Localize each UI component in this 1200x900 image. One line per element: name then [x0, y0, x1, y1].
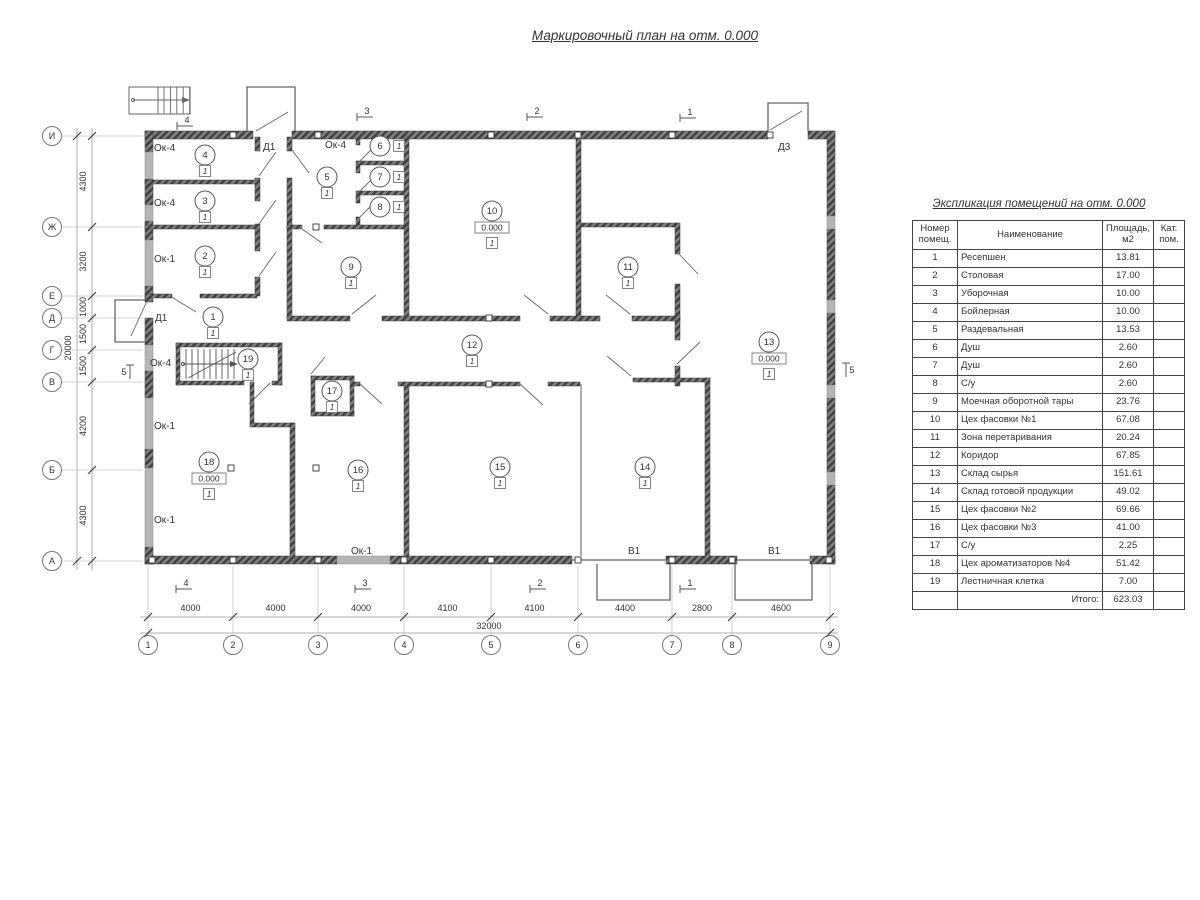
table-cell: Душ [958, 340, 1103, 358]
table-cell: 2.60 [1103, 358, 1154, 376]
table-row: 4Бойлерная10.00 [913, 304, 1185, 322]
table-cell [1154, 304, 1185, 322]
table-cell: 7.00 [1103, 574, 1154, 592]
grid-axis-label: Ж [48, 222, 57, 232]
wall [633, 378, 710, 382]
room-number: 16 [353, 465, 364, 476]
table-cell: 11 [913, 430, 958, 448]
room-schedule-table: Номер помещ. Наименование Площадь, м2 Ка… [912, 220, 1185, 610]
column-mark [230, 557, 236, 563]
room-number: 14 [640, 462, 651, 473]
table-total-row: Итого:623.03 [913, 592, 1185, 610]
exterior-stair-landing [129, 87, 158, 114]
grid-axis-label: Б [49, 465, 55, 475]
wall [287, 227, 292, 318]
window-label: Ок-4 [325, 140, 346, 151]
window-segment [145, 240, 153, 286]
grid-axis-label: И [49, 131, 55, 141]
column-mark [488, 557, 494, 563]
room-number: 15 [495, 462, 506, 473]
wall [176, 343, 282, 347]
table-cell: Уборочная [958, 286, 1103, 304]
table-cell [1154, 502, 1185, 520]
door-leaf [606, 295, 630, 314]
dim-label: 4300 [78, 171, 88, 191]
column-mark [767, 132, 773, 138]
floor-type-mark: 1 [643, 479, 647, 488]
floor-type-mark: 1 [356, 482, 360, 491]
grid-axis-label: 7 [669, 640, 674, 650]
floor-type-mark: 1 [325, 189, 329, 198]
table-cell: 9 [913, 394, 958, 412]
wall [311, 376, 354, 380]
table-cell [913, 592, 958, 610]
table-cell: 10.00 [1103, 304, 1154, 322]
floor-type-mark: 1 [470, 357, 474, 366]
window-label: Ок-4 [150, 358, 171, 369]
table-cell: 13.53 [1103, 322, 1154, 340]
grid-axis-label: 5 [488, 640, 493, 650]
wall [311, 376, 315, 416]
table-row: 5Раздевальная13.53 [913, 322, 1185, 340]
table-cell: 49.02 [1103, 484, 1154, 502]
door-leaf [131, 301, 147, 336]
table-row: 18Цех ароматизаторов №451.42 [913, 556, 1185, 574]
room-number: 8 [377, 202, 382, 213]
table-cell: Раздевальная [958, 322, 1103, 340]
table-header-row: Номер помещ. Наименование Площадь, м2 Ка… [913, 221, 1185, 250]
wall [827, 229, 835, 300]
room-number: 1 [210, 312, 215, 323]
floor-type-mark: 1 [397, 203, 401, 212]
table-cell [1154, 412, 1185, 430]
table-row: 19Лестничная клетка7.00 [913, 574, 1185, 592]
door-leaf [524, 295, 548, 314]
table-cell: Душ [958, 358, 1103, 376]
dim-label: 4200 [78, 416, 88, 436]
table-cell: 2.25 [1103, 538, 1154, 556]
table-row: 2Столовая17.00 [913, 268, 1185, 286]
floor-type-mark: 1 [207, 490, 211, 499]
column-mark [401, 557, 407, 563]
door-leaf [292, 150, 309, 173]
wall [176, 381, 244, 385]
column-mark [315, 132, 321, 138]
wall [550, 316, 600, 321]
wall [145, 449, 153, 468]
table-title: Экспликация помещений на отм. 0.000 [912, 198, 1166, 210]
wall [404, 382, 409, 561]
table-row: 3Уборочная10.00 [913, 286, 1185, 304]
table-cell: Ресепшен [958, 250, 1103, 268]
table-cell: 19 [913, 574, 958, 592]
wall [145, 294, 172, 298]
window-label: Ок-1 [351, 546, 372, 557]
wall [409, 382, 520, 386]
window-label: Ок-1 [154, 254, 175, 265]
table-cell: Склад готовой продукции [958, 484, 1103, 502]
header-room-area: Площадь, м2 [1103, 221, 1154, 250]
column-mark [826, 557, 832, 563]
table-cell: 51.42 [1103, 556, 1154, 574]
grid-axis-label: Г [50, 345, 55, 355]
window-segment [827, 472, 835, 485]
door-leaf [256, 112, 288, 131]
table-cell: 15 [913, 502, 958, 520]
window-label: Ок-1 [154, 421, 175, 432]
dim-total-label: 32000 [476, 621, 501, 631]
door-leaf [259, 200, 276, 224]
wall [705, 378, 710, 561]
floor-plan-drawing: ИЖЕДГВБА20000430032001000150015004200430… [0, 0, 900, 700]
room-number: 19 [243, 354, 254, 365]
table-cell [1154, 358, 1185, 376]
window-label: Ок-4 [154, 198, 175, 209]
window-segment [827, 385, 835, 398]
table-cell [1154, 430, 1185, 448]
table-cell [1154, 556, 1185, 574]
section-mark-label: 5 [849, 365, 854, 375]
room-schedule: Экспликация помещений на отм. 0.000 Номе… [912, 198, 1166, 610]
room-number: 12 [467, 340, 478, 351]
wall [390, 556, 572, 564]
vestibule-outline [735, 564, 812, 600]
table-cell: 2.60 [1103, 376, 1154, 394]
level-mark: 0.000 [481, 223, 503, 233]
wall [324, 225, 408, 229]
window-segment [145, 468, 153, 547]
table-cell: 3 [913, 286, 958, 304]
table-cell: 69.66 [1103, 502, 1154, 520]
table-cell: С/у [958, 376, 1103, 394]
wall [675, 366, 680, 386]
table-cell [1154, 484, 1185, 502]
table-cell: 4 [913, 304, 958, 322]
wall [576, 136, 581, 321]
door-leaf [677, 342, 700, 364]
table-cell [1154, 574, 1185, 592]
column-mark [313, 224, 319, 230]
wall [827, 485, 835, 564]
window-segment [827, 216, 835, 229]
wall [382, 316, 520, 321]
table-row: 13Склад сырья151.61 [913, 466, 1185, 484]
dim-label: 4000 [351, 603, 371, 613]
wall [287, 178, 292, 227]
total-value: 623.03 [1103, 592, 1154, 610]
section-mark-label: 3 [364, 106, 369, 116]
door-leaf [302, 229, 322, 243]
gate-label: В1 [628, 546, 641, 557]
dim-total-label: 20000 [63, 335, 73, 360]
door-leaf [679, 254, 698, 274]
column-mark [669, 557, 675, 563]
table-row: 12Коридор67.85 [913, 448, 1185, 466]
grid-axis-label: Е [49, 291, 55, 301]
table-cell: 8 [913, 376, 958, 394]
table-cell: 20.24 [1103, 430, 1154, 448]
table-cell: 67.08 [1103, 412, 1154, 430]
door-label: Д1 [263, 142, 276, 153]
stair-break-line [188, 352, 236, 378]
wall [255, 137, 260, 151]
wall [827, 131, 835, 216]
table-cell: Цех фасовки №2 [958, 502, 1103, 520]
table-cell: 17 [913, 538, 958, 556]
door-leaf [311, 357, 325, 374]
table-cell: 5 [913, 322, 958, 340]
grid-axis-label: В [49, 377, 55, 387]
header-room-name: Наименование [958, 221, 1103, 250]
column-mark [315, 557, 321, 563]
dim-label: 3200 [78, 251, 88, 271]
table-cell: 14 [913, 484, 958, 502]
floor-type-mark: 1 [397, 142, 401, 151]
column-mark [313, 465, 319, 471]
wall [356, 139, 360, 145]
section-mark-label: 2 [534, 106, 539, 116]
table-cell: 16 [913, 520, 958, 538]
table-cell: Склад сырья [958, 466, 1103, 484]
table-cell [1154, 448, 1185, 466]
wall [250, 423, 294, 427]
door-leaf [352, 295, 376, 314]
table-cell: 10.00 [1103, 286, 1154, 304]
table-row: 8С/у2.60 [913, 376, 1185, 394]
table-cell: С/у [958, 538, 1103, 556]
room-number: 5 [324, 172, 329, 183]
grid-axis-label: 2 [230, 640, 235, 650]
column-mark [575, 132, 581, 138]
column-mark [230, 132, 236, 138]
grid-axis-label: А [49, 556, 55, 566]
floor-type-mark: 1 [490, 239, 494, 248]
wall [632, 316, 680, 321]
wall [145, 180, 257, 184]
floor-type-mark: 1 [349, 279, 353, 288]
door-leaf [770, 111, 802, 130]
table-cell: Лестничная клетка [958, 574, 1103, 592]
table-row: 7Душ2.60 [913, 358, 1185, 376]
floor-type-mark: 1 [246, 371, 250, 380]
column-mark [488, 132, 494, 138]
wall [145, 225, 257, 229]
wall [675, 223, 680, 254]
table-row: 1Ресепшен13.81 [913, 250, 1185, 268]
table-row: 14Склад готовой продукции49.02 [913, 484, 1185, 502]
floor-type-mark: 1 [498, 479, 502, 488]
table-cell [1154, 376, 1185, 394]
header-room-number: Номер помещ. [913, 221, 958, 250]
floor-type-mark: 1 [767, 370, 771, 379]
grid-axis-label: 9 [827, 640, 832, 650]
wall [287, 225, 302, 229]
table-cell: Столовая [958, 268, 1103, 286]
wall [548, 382, 580, 386]
table-cell: 6 [913, 340, 958, 358]
section-mark-label: 2 [537, 578, 542, 588]
table-cell: Моечная оборотной тары [958, 394, 1103, 412]
floor-type-mark: 1 [211, 329, 215, 338]
door-leaf [170, 296, 196, 312]
table-cell: Цех фасовки №1 [958, 412, 1103, 430]
column-mark [486, 381, 492, 387]
table-cell: 13 [913, 466, 958, 484]
table-cell: 41.00 [1103, 520, 1154, 538]
section-mark-label: 5 [121, 367, 126, 377]
floor-type-mark: 1 [203, 213, 207, 222]
door-label: Д3 [778, 142, 791, 153]
window-label: Ок-1 [154, 515, 175, 526]
dim-label: 4100 [437, 603, 457, 613]
grid-axis-label: 3 [315, 640, 320, 650]
room-number: 4 [202, 150, 207, 161]
wall [278, 343, 282, 385]
wall [358, 161, 408, 165]
door-leaf [259, 252, 276, 276]
wall [292, 131, 768, 139]
wall [287, 316, 350, 321]
vestibule-outline [247, 87, 295, 131]
table-cell [1154, 322, 1185, 340]
wall [352, 382, 360, 386]
table-cell: 151.61 [1103, 466, 1154, 484]
column-mark [149, 557, 155, 563]
room-number: 18 [204, 457, 215, 468]
table-cell [1154, 250, 1185, 268]
wall [200, 294, 257, 298]
window-segment [337, 556, 390, 564]
grid-axis-label: 8 [729, 640, 734, 650]
grid-axis-label: 6 [575, 640, 580, 650]
table-cell [1154, 340, 1185, 358]
table-cell: 67.85 [1103, 448, 1154, 466]
wall [827, 398, 835, 472]
wall [675, 284, 680, 340]
vestibule-outline [115, 300, 145, 342]
section-mark-label: 4 [183, 578, 188, 588]
vestibule-outline [768, 103, 808, 131]
dim-label: 4100 [524, 603, 544, 613]
table-row: 15Цех фасовки №269.66 [913, 502, 1185, 520]
room-number: 13 [764, 337, 775, 348]
level-mark: 0.000 [758, 354, 780, 364]
window-segment [145, 205, 153, 221]
table-cell [1154, 394, 1185, 412]
total-label: Итого: [958, 592, 1103, 610]
door-leaf [259, 152, 276, 176]
drawing-sheet: Маркировочный план на отм. 0.000 ИЖЕДГВБ… [0, 0, 1200, 900]
section-mark-label: 4 [184, 115, 189, 125]
wall [145, 556, 337, 564]
wall [176, 343, 180, 385]
header-room-cat: Кат. пом. [1154, 221, 1185, 250]
table-cell: 7 [913, 358, 958, 376]
wall [287, 137, 292, 151]
table-cell: Коридор [958, 448, 1103, 466]
room-number: 10 [487, 206, 498, 217]
table-row: 6Душ2.60 [913, 340, 1185, 358]
table-cell [1154, 286, 1185, 304]
wall [145, 318, 153, 345]
vestibule-outline [597, 564, 670, 600]
wall [145, 371, 153, 398]
room-number: 3 [202, 196, 207, 207]
wall [145, 221, 153, 240]
table-cell: 2.60 [1103, 340, 1154, 358]
window-label: Ок-4 [154, 143, 175, 154]
room-number: 17 [327, 386, 338, 397]
gate-label: В1 [768, 546, 781, 557]
room-number: 2 [202, 251, 207, 262]
window-segment [145, 398, 153, 449]
wall [290, 423, 295, 561]
table-cell: 10 [913, 412, 958, 430]
table-cell: 17.00 [1103, 268, 1154, 286]
wall [827, 313, 835, 385]
floor-type-mark: 1 [203, 268, 207, 277]
dim-label: 4000 [265, 603, 285, 613]
level-mark: 0.000 [198, 474, 220, 484]
section-mark-label: 1 [687, 107, 692, 117]
table-cell: 2 [913, 268, 958, 286]
table-row: 9Моечная оборотной тары23.76 [913, 394, 1185, 412]
dim-label: 4600 [771, 603, 791, 613]
column-mark [228, 465, 234, 471]
wall [666, 556, 737, 564]
table-cell [1154, 268, 1185, 286]
table-cell [1154, 592, 1185, 610]
door-leaf [607, 356, 631, 376]
window-segment [827, 300, 835, 313]
dim-label: 2800 [692, 603, 712, 613]
section-mark-label: 1 [687, 578, 692, 588]
window-segment [145, 152, 153, 179]
room-number: 6 [377, 141, 382, 152]
table-cell [1154, 466, 1185, 484]
floor-type-mark: 1 [397, 173, 401, 182]
section-mark-label: 3 [362, 578, 367, 588]
table-cell: 1 [913, 250, 958, 268]
dim-label: 4300 [78, 505, 88, 525]
dim-label: 1500 [78, 324, 88, 344]
floor-type-mark: 1 [626, 279, 630, 288]
floor-type-mark: 1 [330, 403, 334, 412]
column-mark [575, 557, 581, 563]
table-row: 17С/у2.25 [913, 538, 1185, 556]
table-cell: 18 [913, 556, 958, 574]
dim-label: 4000 [180, 603, 200, 613]
grid-axis-label: 1 [145, 640, 150, 650]
door-leaf [360, 384, 382, 404]
table-cell [1154, 538, 1185, 556]
dim-label: 4400 [615, 603, 635, 613]
grid-axis-label: 4 [401, 640, 406, 650]
table-row: 10Цех фасовки №167.08 [913, 412, 1185, 430]
stair-arrow [182, 97, 190, 103]
door-leaf [520, 384, 543, 405]
column-mark [486, 315, 492, 321]
dim-label: 1000 [78, 297, 88, 317]
wall [578, 223, 677, 227]
table-cell: 13.81 [1103, 250, 1154, 268]
wall [145, 131, 153, 152]
room-number: 7 [377, 172, 382, 183]
table-cell [1154, 520, 1185, 538]
column-mark [669, 132, 675, 138]
table-cell: Цех ароматизаторов №4 [958, 556, 1103, 574]
floor-type-mark: 1 [203, 167, 207, 176]
